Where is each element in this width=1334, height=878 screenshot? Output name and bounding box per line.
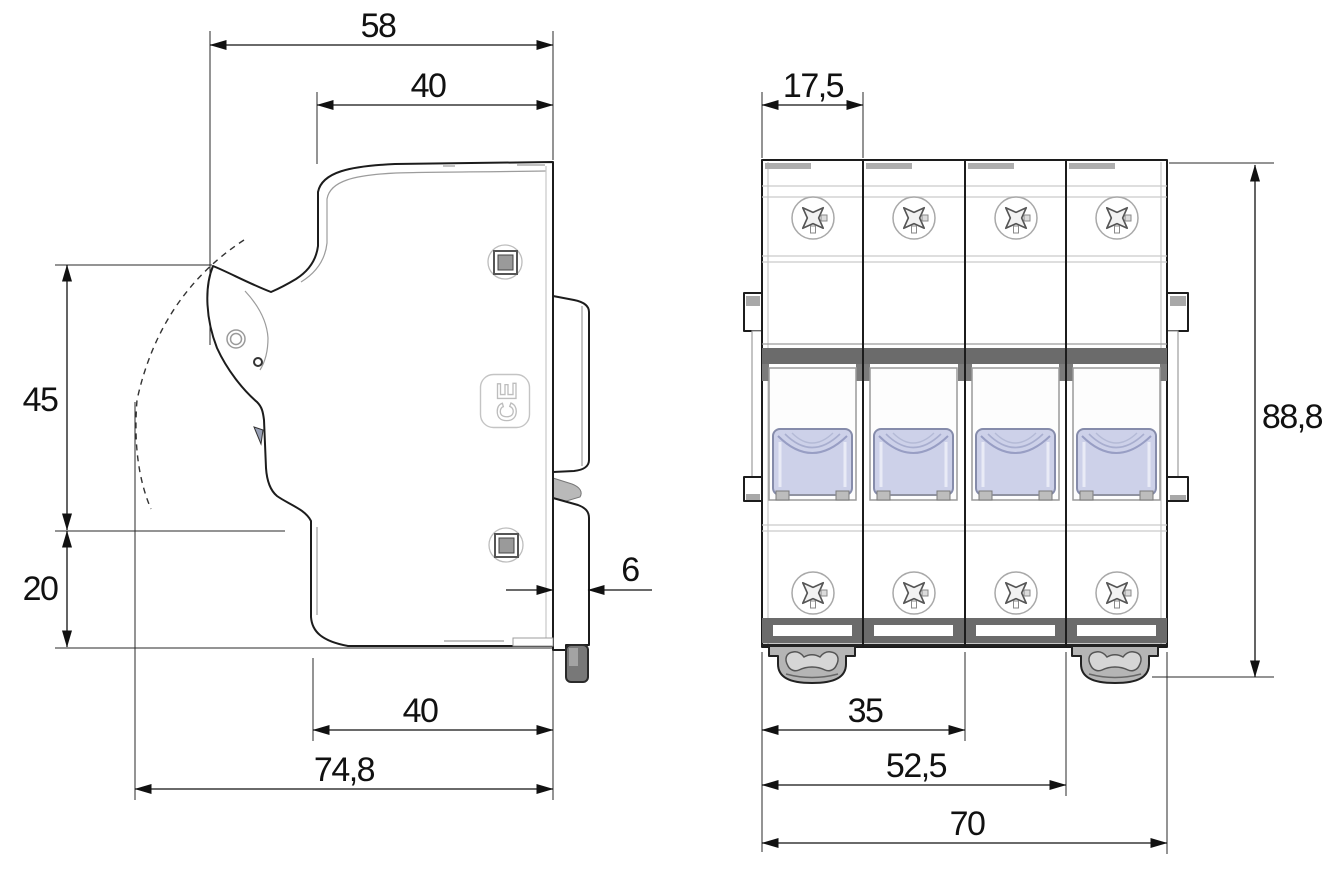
dim-front-overall-height: 88,8: [1255, 165, 1323, 677]
dim-label: 88,8: [1262, 398, 1323, 436]
dim-label: 6: [621, 551, 639, 589]
pole-window-3: [972, 368, 1059, 500]
mounting-ear-left: [744, 293, 762, 501]
pole-window-2: [870, 368, 957, 500]
dim-side-lower-zone-height: 20: [23, 531, 67, 647]
dim-label: 35: [848, 692, 883, 730]
dim-side-lower-front-width: 40: [313, 692, 553, 730]
dim-side-upper-front-width: 40: [317, 67, 553, 105]
bottom-notch: [513, 638, 553, 646]
dim-label: 20: [23, 570, 58, 608]
din-rail-profile: [553, 296, 589, 682]
phillips-screw-icon: [1096, 572, 1138, 614]
band-slot: [1077, 625, 1156, 636]
dim-label: 70: [950, 805, 985, 843]
technical-drawing-canvas: CE 58 40 45 20 40 74,8: [0, 0, 1334, 878]
front-view: 17,5 88,8 35 52,5 70: [744, 67, 1323, 854]
din-rail-clip-right: [1072, 646, 1158, 683]
top-label-bar: [765, 163, 811, 169]
dim-label: 40: [411, 67, 446, 105]
dim-label: 40: [403, 692, 438, 730]
phillips-screw-icon: [893, 572, 935, 614]
dim-side-handle-zone-height: 45: [23, 265, 67, 530]
dim-label: 52,5: [886, 747, 947, 785]
terminal-screw-bottom: [489, 528, 523, 562]
side-view: CE 58 40 45 20 40 74,8: [23, 7, 652, 800]
terminal-screw-top: [488, 245, 522, 279]
pole-window-4: [1073, 368, 1160, 500]
dim-label: 45: [23, 381, 58, 419]
mounting-ear-right: [1167, 293, 1188, 501]
top-label-bar: [866, 163, 912, 169]
top-label-bar: [968, 163, 1014, 169]
release-tab: [254, 427, 263, 444]
band-slot: [773, 625, 852, 636]
dim-side-overall-depth: 74,8: [135, 751, 553, 789]
pole-window-1: [769, 368, 856, 500]
dim-label: 74,8: [314, 751, 375, 789]
phillips-screw-icon: [995, 572, 1037, 614]
phillips-screw-icon: [893, 197, 935, 239]
top-label-bar: [1069, 163, 1115, 169]
ce-mark-text: CE: [492, 380, 522, 422]
lever-pin: [254, 358, 262, 366]
dim-front-overall-width: 70: [762, 805, 1167, 843]
dim-side-overall-width: 58: [210, 7, 553, 45]
dim-label: 58: [361, 7, 396, 45]
phillips-screw-icon: [995, 197, 1037, 239]
dim-front-two-module-width: 35: [762, 692, 965, 730]
phillips-screw-icon: [792, 197, 834, 239]
din-rail-clip-left: [769, 646, 855, 683]
phillips-screw-icon: [792, 572, 834, 614]
dim-front-module-width: 17,5: [762, 67, 863, 105]
band-slot: [874, 625, 953, 636]
phillips-screw-icon: [1096, 197, 1138, 239]
dim-front-three-module-width: 52,5: [762, 747, 1066, 785]
dim-label: 17,5: [783, 67, 844, 105]
drawing-page: CE 58 40 45 20 40 74,8: [0, 0, 1334, 878]
band-slot: [976, 625, 1055, 636]
